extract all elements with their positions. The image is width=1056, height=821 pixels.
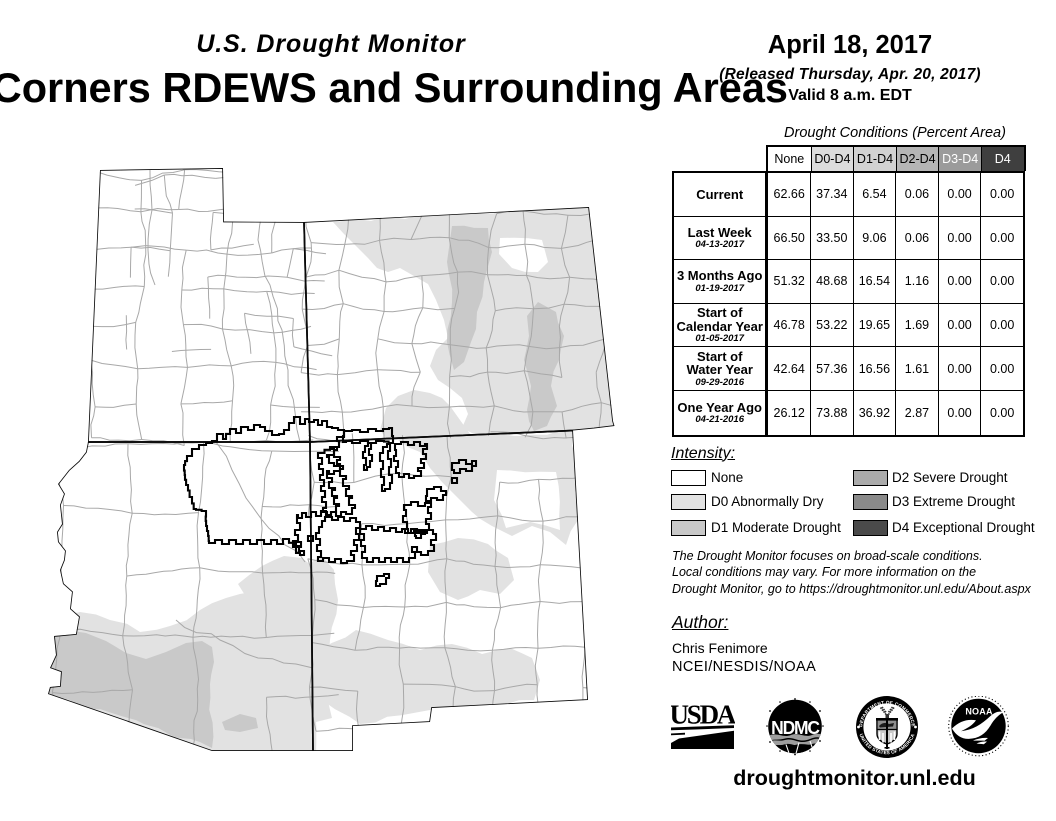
svg-text:USDA: USDA bbox=[671, 702, 735, 730]
svg-text:NOAA: NOAA bbox=[965, 707, 993, 717]
